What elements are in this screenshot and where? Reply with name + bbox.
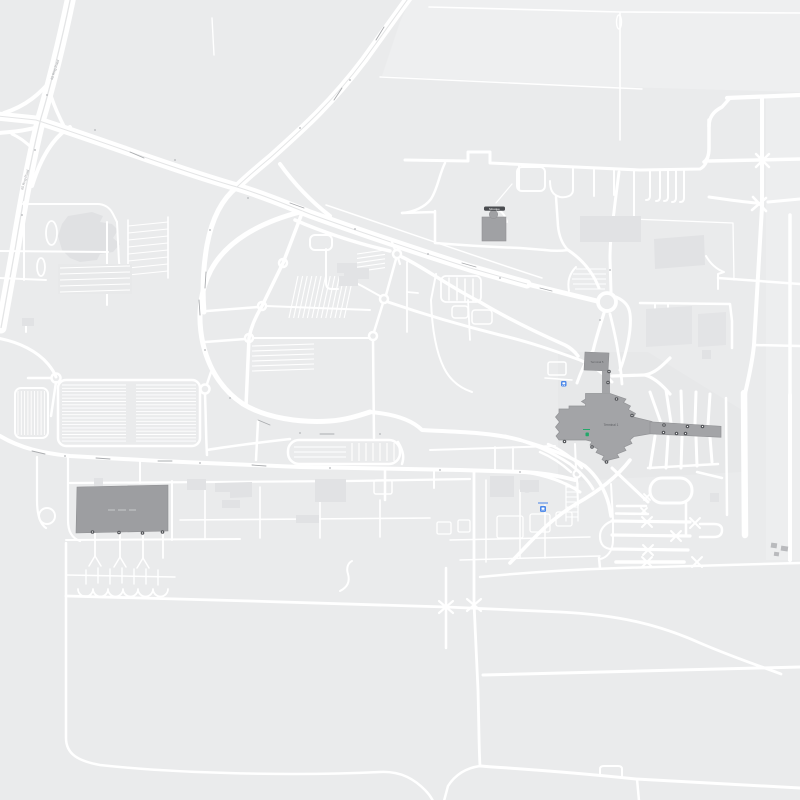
svg-text:Terminal 1: Terminal 1 — [604, 423, 619, 427]
svg-text:Mosque: Mosque — [489, 207, 500, 211]
svg-text:Terminal 5: Terminal 5 — [591, 360, 604, 364]
